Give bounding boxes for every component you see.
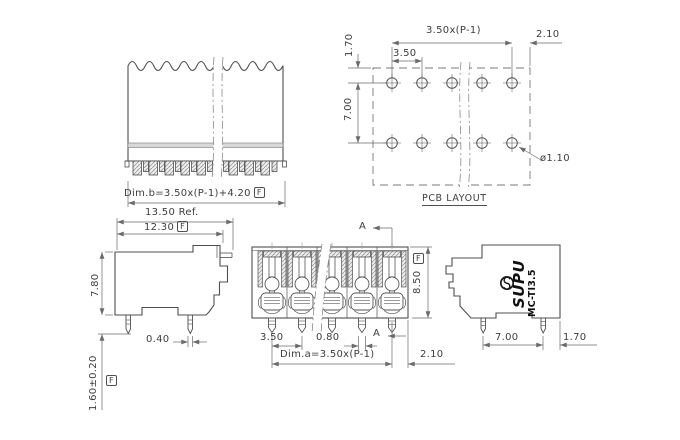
brand-text: SUPU	[510, 260, 528, 308]
model-text: MC-TI3.5	[527, 269, 538, 317]
frame-symbol: F	[106, 375, 117, 386]
view-front-contacts	[252, 243, 408, 335]
section-edge-offset-label: 2.10	[420, 349, 443, 360]
section-a-top-label: A	[359, 221, 366, 232]
section-pin-width-label: 0.80	[316, 332, 339, 343]
width-label: 12.30F	[144, 221, 188, 233]
dims-pcb	[348, 43, 562, 160]
frame-symbol: F	[254, 187, 265, 198]
view-pcb-layout	[373, 62, 530, 190]
technical-drawing-sheet: Dim.b=3.50x(P-1)+4.20F 13.50 Ref. 12.30F…	[0, 0, 680, 440]
drawing-canvas	[0, 0, 680, 440]
view-front-broken	[125, 57, 287, 180]
pcb-hole-dia-label: ø1.10	[540, 153, 570, 164]
pcb-total-pitch-label: 3.50x(P-1)	[426, 25, 481, 36]
dims-side-left	[98, 218, 233, 410]
view-side-left	[115, 246, 232, 334]
right-edge-offset-label: 1.70	[563, 332, 586, 343]
pcb-row-top-label: 1.70	[344, 34, 355, 57]
pcb-layout-title: PCB LAYOUT	[422, 193, 487, 204]
section-a-bottom-label: A	[373, 328, 380, 339]
section-pitch-label: 3.50	[260, 332, 283, 343]
pcb-pitch-label: 3.50	[393, 48, 416, 59]
right-pin-spacing-label: 7.00	[495, 332, 518, 343]
pin-width-label: 0.40	[146, 334, 169, 345]
pin-teeth-row	[133, 161, 277, 175]
pin-length-label: 1.60±0.20	[88, 355, 99, 411]
dim-b-text: Dim.b=3.50x(P-1)+4.20	[124, 188, 251, 199]
dim-b-label: Dim.b=3.50x(P-1)+4.20F	[124, 187, 265, 199]
housing-band	[128, 143, 283, 148]
section-height-label: 8.50	[412, 271, 423, 294]
housing-outline	[446, 245, 560, 318]
pcb-row-spacing-label: 7.00	[343, 98, 354, 121]
housing-outline	[115, 246, 228, 316]
pcb-edge-offset-label: 2.10	[536, 29, 559, 40]
pcb-holes	[383, 74, 521, 152]
frame-symbol: F	[177, 221, 188, 232]
dim-a-label: Dim.a=3.50x(P-1)	[280, 349, 374, 360]
frame-symbol: F	[413, 253, 424, 264]
height-label: 7.80	[90, 274, 101, 297]
view-side-right	[446, 245, 560, 333]
ref-width-label: 13.50 Ref.	[145, 207, 198, 218]
